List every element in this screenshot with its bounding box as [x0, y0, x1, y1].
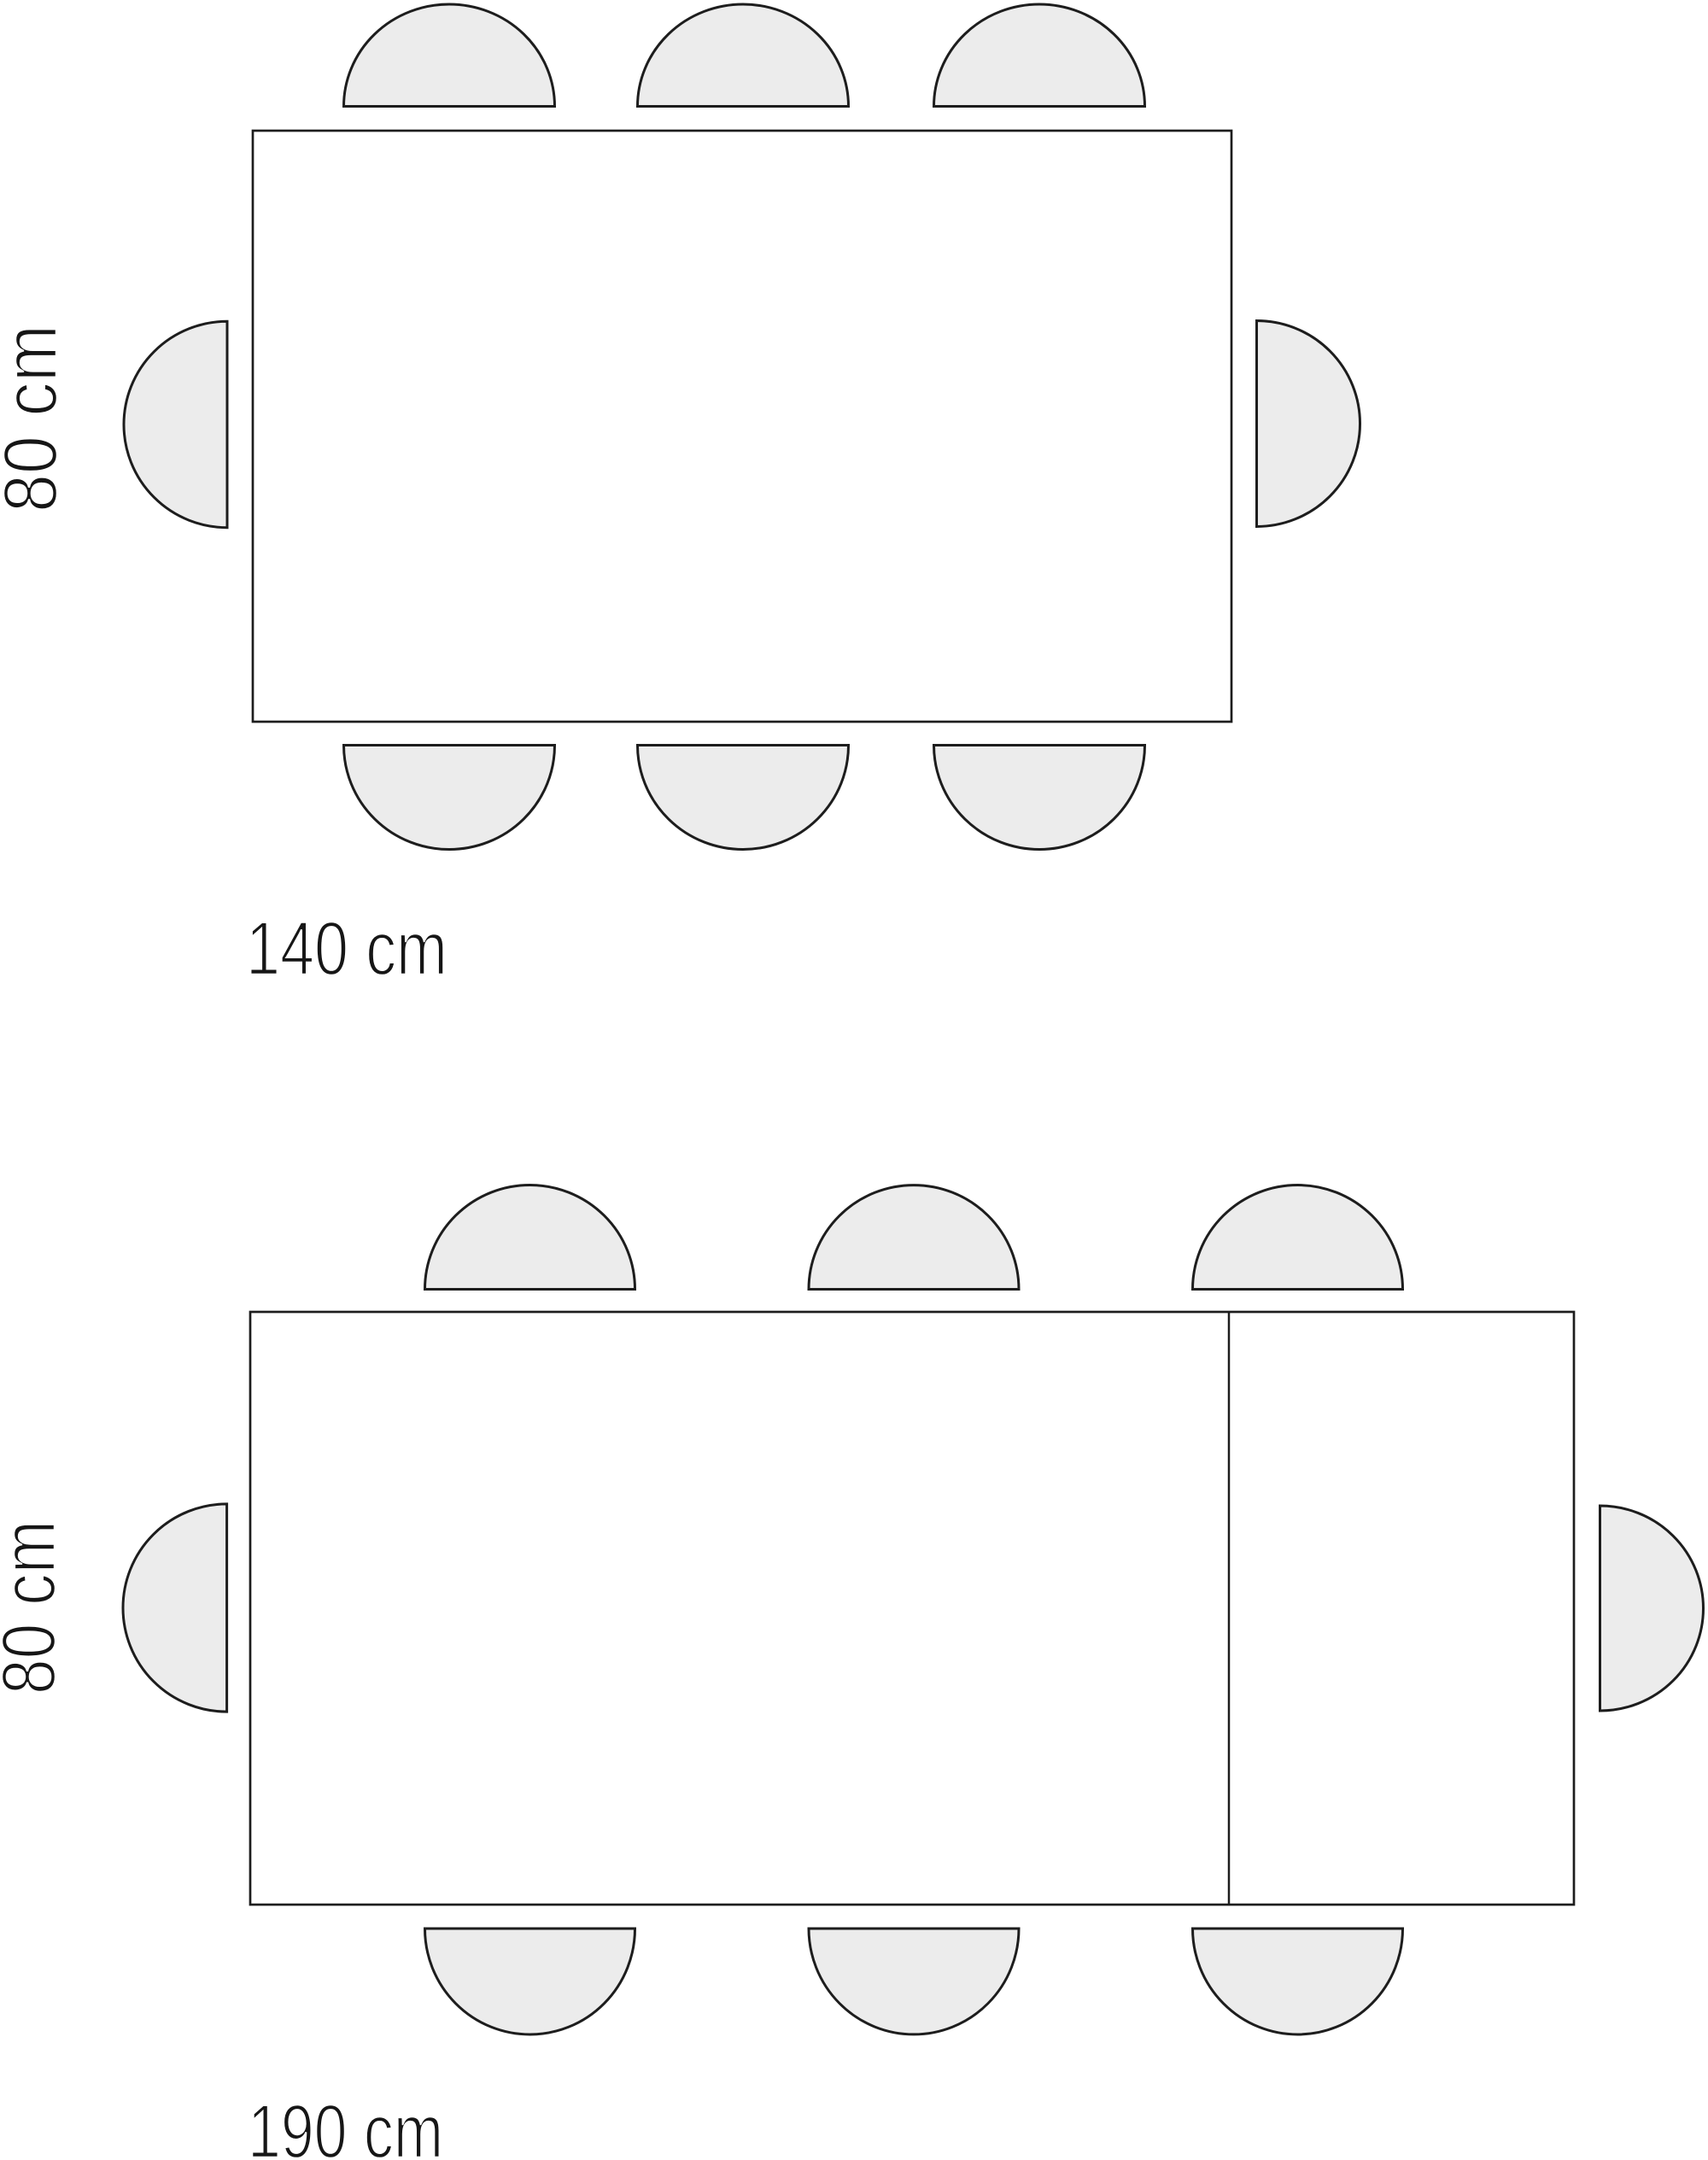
svg-text:140 cm: 140 cm — [246, 906, 447, 991]
svg-text:80 cm: 80 cm — [0, 1520, 71, 1695]
svg-text:80 cm: 80 cm — [0, 325, 73, 512]
svg-text:190 cm: 190 cm — [248, 2089, 443, 2160]
